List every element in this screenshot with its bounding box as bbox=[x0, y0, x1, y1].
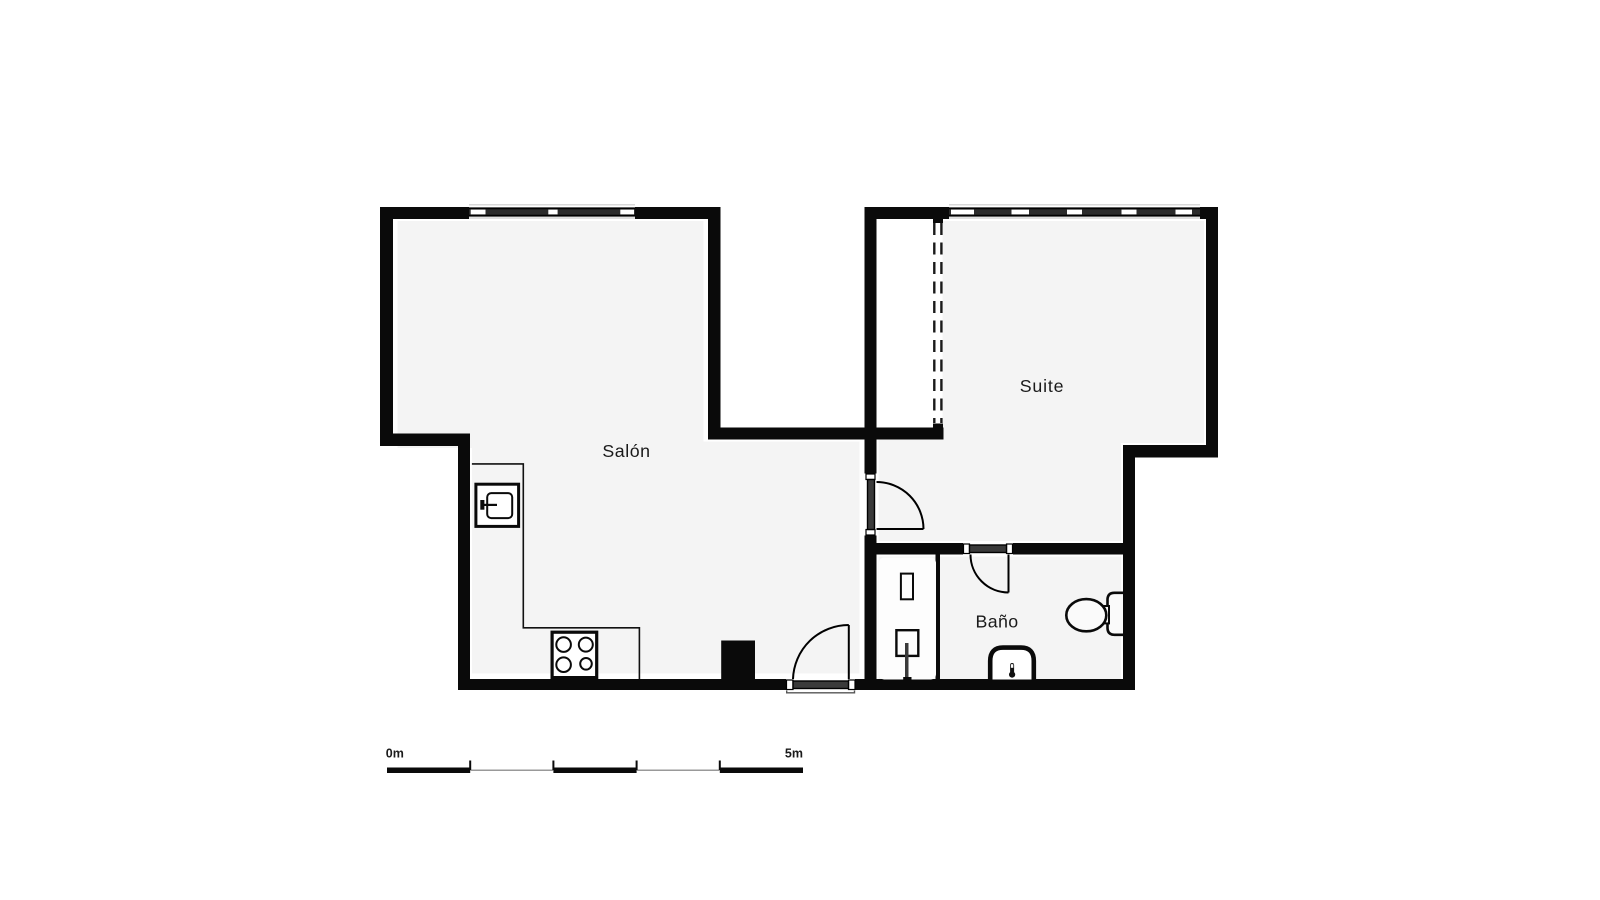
svg-text:0m: 0m bbox=[386, 747, 404, 761]
svg-text:Baño: Baño bbox=[976, 612, 1019, 632]
svg-text:Salón: Salón bbox=[602, 441, 650, 461]
svg-text:Suite: Suite bbox=[1020, 376, 1065, 396]
svg-text:5m: 5m bbox=[785, 747, 803, 761]
